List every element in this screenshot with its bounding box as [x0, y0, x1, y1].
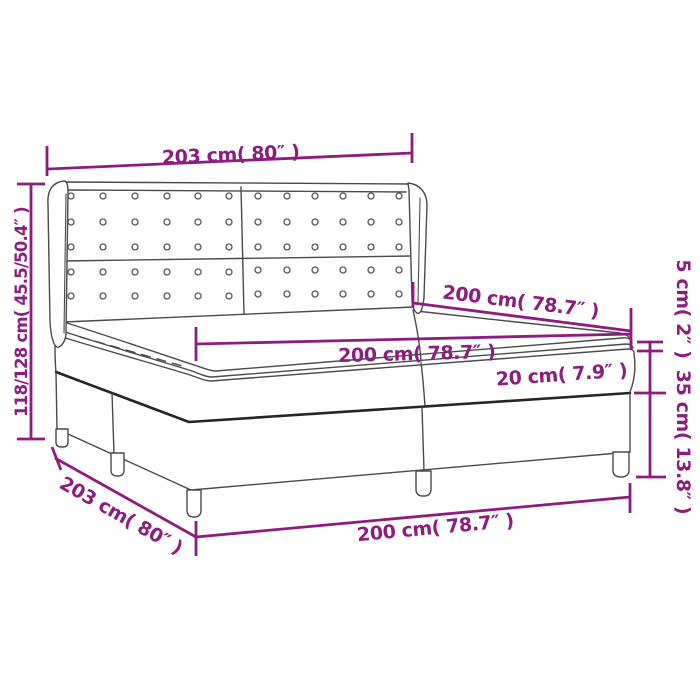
tuft-button [396, 193, 402, 199]
tuft-button [368, 291, 374, 297]
tuft-button [312, 267, 318, 273]
tuft-button [312, 193, 318, 199]
tuft-button [396, 291, 402, 297]
tuft-button [368, 219, 374, 225]
tuft-button [255, 267, 261, 273]
tuft-button [132, 193, 138, 199]
leg-front-left [187, 490, 201, 517]
leg-front-middle [416, 471, 431, 496]
tuft-button [284, 219, 290, 225]
tuft-button [340, 193, 346, 199]
tuft-button [312, 291, 318, 297]
tuft-button [195, 293, 201, 299]
tuft-button [255, 244, 261, 250]
tuft-button [226, 219, 232, 225]
leg-front-right [613, 452, 629, 477]
tuft-button [164, 193, 170, 199]
tuft-button [340, 267, 346, 273]
tuft-button [100, 269, 106, 275]
tuft-button [68, 219, 74, 225]
tuft-button [396, 219, 402, 225]
tuft-button [164, 244, 170, 250]
tuft-button [164, 293, 170, 299]
leg-left-middle [111, 453, 124, 476]
label-mattress-width: 200 cm( 78.7″ ) [338, 341, 496, 367]
tuft-button [68, 244, 74, 250]
tuft-button [368, 193, 374, 199]
tuft-button [340, 219, 346, 225]
headboard-panel [62, 182, 414, 322]
tuft-button [195, 193, 201, 199]
tuft-button [100, 193, 106, 199]
tuft-button [226, 193, 232, 199]
tuft-button [312, 219, 318, 225]
tuft-button [68, 293, 74, 299]
tuft-button [226, 269, 232, 275]
tuft-button [226, 293, 232, 299]
tuft-button [255, 219, 261, 225]
label-total-height: 118/128 cm( 45.5/50.4″ ) [12, 207, 31, 417]
leg-back-left [56, 429, 68, 447]
tuft-button [284, 291, 290, 297]
tuft-button [340, 244, 346, 250]
headboard [62, 182, 414, 322]
tuft-button [164, 219, 170, 225]
tuft-button [100, 244, 106, 250]
tuft-button [284, 267, 290, 273]
tuft-button [195, 244, 201, 250]
tuft-button [396, 267, 402, 273]
tuft-button [195, 269, 201, 275]
tuft-button [68, 193, 74, 199]
tuft-button [132, 244, 138, 250]
tuft-button [312, 244, 318, 250]
tuft-button [255, 193, 261, 199]
tuft-button [132, 219, 138, 225]
bed-dimension-diagram: 203 cm( 80″ ) 118/128 cm( 45.5/50.4″ ) 2… [0, 0, 700, 700]
tuft-button [255, 291, 261, 297]
tuft-button [284, 193, 290, 199]
tuft-button [226, 244, 232, 250]
tuft-button [340, 291, 346, 297]
tuft-button [368, 244, 374, 250]
tuft-button [132, 269, 138, 275]
tuft-button [368, 267, 374, 273]
tuft-button [100, 293, 106, 299]
diagram-canvas: 203 cm( 80″ ) 118/128 cm( 45.5/50.4″ ) 2… [0, 0, 700, 700]
tuft-button [100, 219, 106, 225]
label-topper-thickness: 5 cm( 2″ ) [672, 259, 694, 358]
label-base-height: 35 cm( 13.8″ ) [672, 370, 694, 514]
tuft-button [284, 244, 290, 250]
tuft-button [164, 269, 170, 275]
tuft-button [195, 219, 201, 225]
tuft-button [396, 244, 402, 250]
tuft-button [68, 269, 74, 275]
tuft-button [132, 293, 138, 299]
